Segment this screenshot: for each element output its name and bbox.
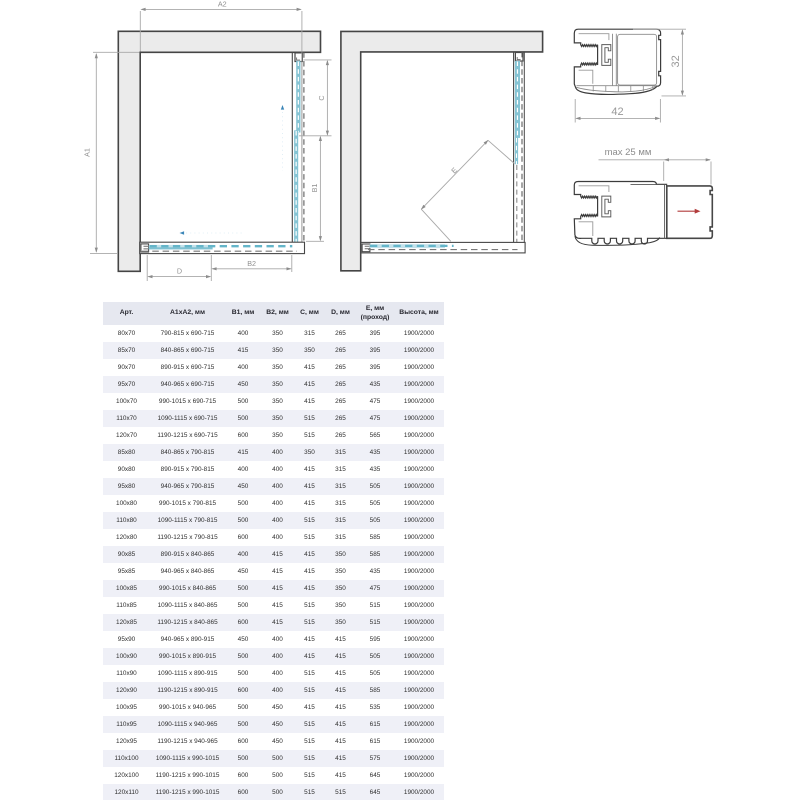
svg-text:A2: A2 bbox=[218, 0, 227, 9]
svg-text:E: E bbox=[449, 165, 459, 175]
svg-text:C: C bbox=[317, 95, 326, 100]
svg-text:max 25 мм: max 25 мм bbox=[605, 147, 652, 158]
svg-text:32: 32 bbox=[670, 55, 682, 67]
svg-text:D: D bbox=[177, 267, 182, 276]
svg-text:A1: A1 bbox=[83, 148, 92, 157]
svg-text:42: 42 bbox=[611, 106, 623, 118]
svg-text:B1: B1 bbox=[310, 184, 319, 193]
svg-text:B2: B2 bbox=[247, 259, 256, 268]
